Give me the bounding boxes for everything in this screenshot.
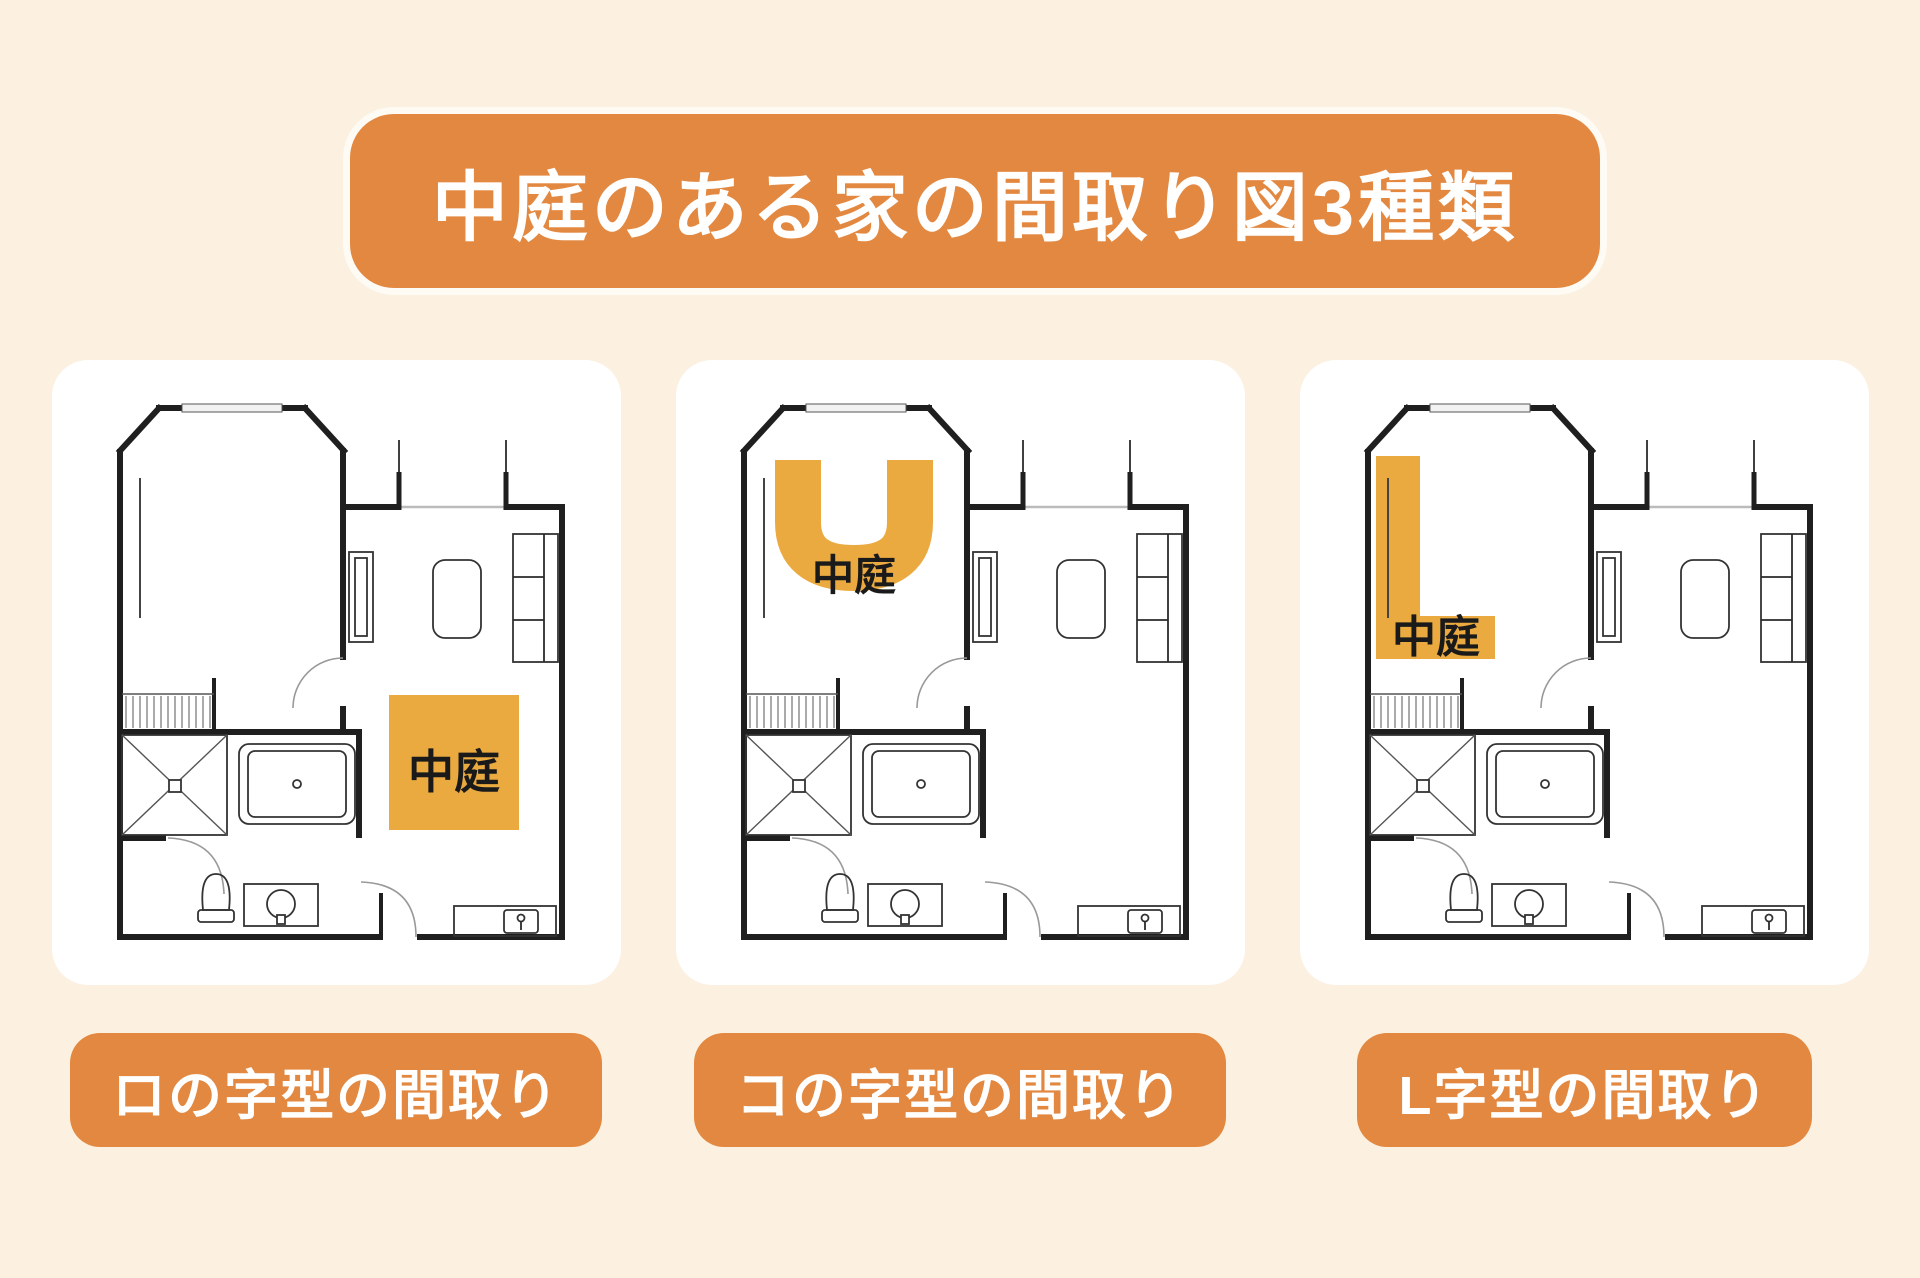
kitchen-faucet bbox=[517, 915, 524, 922]
courtyard-label: 中庭 bbox=[1392, 613, 1480, 662]
toilet-bowl bbox=[826, 874, 853, 910]
toilet-base bbox=[198, 910, 234, 922]
courtyard-label: 中庭 bbox=[408, 746, 500, 798]
vanity-tap bbox=[1525, 915, 1533, 924]
bedroom-window bbox=[1430, 404, 1530, 412]
bathtub-drain bbox=[1541, 780, 1549, 788]
vanity-tap bbox=[277, 915, 285, 924]
floorplan-svg: 中庭 bbox=[52, 360, 621, 985]
bedroom-window bbox=[806, 404, 906, 412]
toilet-bowl bbox=[202, 874, 229, 910]
shower-drain bbox=[1417, 780, 1429, 792]
bathtub-inner bbox=[1496, 751, 1594, 817]
bathtub-inner bbox=[872, 751, 970, 817]
sofa bbox=[1761, 534, 1806, 662]
vanity-tap bbox=[901, 915, 909, 924]
floorplan-drawing-square: 中庭 bbox=[52, 360, 621, 985]
tv-board-inner bbox=[355, 558, 367, 636]
floorplan-svg: 中庭 bbox=[676, 360, 1245, 985]
bathtub bbox=[239, 744, 355, 824]
title-banner: 中庭のある家の間取り図3種類 bbox=[350, 114, 1600, 288]
kitchen-faucet bbox=[1765, 915, 1772, 922]
bathtub-drain bbox=[293, 780, 301, 788]
tv-board-inner bbox=[979, 558, 991, 636]
shower-drain bbox=[169, 780, 181, 792]
shower-drain bbox=[793, 780, 805, 792]
walls bbox=[1365, 404, 1813, 940]
floorplan-card-3: 中庭 bbox=[1300, 360, 1869, 985]
bathtub bbox=[863, 744, 979, 824]
floorplan-svg: 中庭 bbox=[1300, 360, 1869, 985]
courtyard-label: 中庭 bbox=[811, 552, 895, 599]
floorplan-card-1: 中庭 bbox=[52, 360, 621, 985]
toilet-bowl bbox=[1450, 874, 1477, 910]
walls bbox=[117, 404, 565, 940]
caption-pill-u: コの字型の間取り bbox=[694, 1033, 1226, 1147]
sofa bbox=[513, 534, 558, 662]
column-square-plan: 中庭 ロの字型の間取り bbox=[52, 360, 621, 1147]
tv-board-inner bbox=[1603, 558, 1615, 636]
infographic-canvas: 中庭のある家の間取り図3種類 bbox=[0, 0, 1920, 1278]
tv-board bbox=[1597, 552, 1621, 642]
column-l-plan: 中庭 L字型の間取り bbox=[1300, 360, 1869, 1147]
column-u-plan: 中庭 コの字型の間取り bbox=[676, 360, 1245, 1147]
living-table bbox=[1057, 560, 1105, 638]
bedroom-window bbox=[182, 404, 282, 412]
floorplan-drawing-l: 中庭 bbox=[1300, 360, 1869, 985]
bathtub bbox=[1487, 744, 1603, 824]
floorplan-row: 中庭 ロの字型の間取り bbox=[0, 360, 1920, 1147]
page-title: 中庭のある家の間取り図3種類 bbox=[432, 146, 1518, 256]
caption-pill-square: ロの字型の間取り bbox=[70, 1033, 602, 1147]
tv-board bbox=[349, 552, 373, 642]
floorplan-card-2: 中庭 bbox=[676, 360, 1245, 985]
sofa bbox=[1137, 534, 1182, 662]
vanity-basin bbox=[891, 890, 919, 918]
toilet-base bbox=[1446, 910, 1482, 922]
bathtub-drain bbox=[917, 780, 925, 788]
tv-board bbox=[973, 552, 997, 642]
kitchen-faucet bbox=[1141, 915, 1148, 922]
bathtub-inner bbox=[248, 751, 346, 817]
living-table bbox=[433, 560, 481, 638]
toilet-base bbox=[822, 910, 858, 922]
floorplan-drawing-u: 中庭 bbox=[676, 360, 1245, 985]
vanity-basin bbox=[267, 890, 295, 918]
caption-pill-l: L字型の間取り bbox=[1357, 1033, 1812, 1147]
living-table bbox=[1681, 560, 1729, 638]
vanity-basin bbox=[1515, 890, 1543, 918]
